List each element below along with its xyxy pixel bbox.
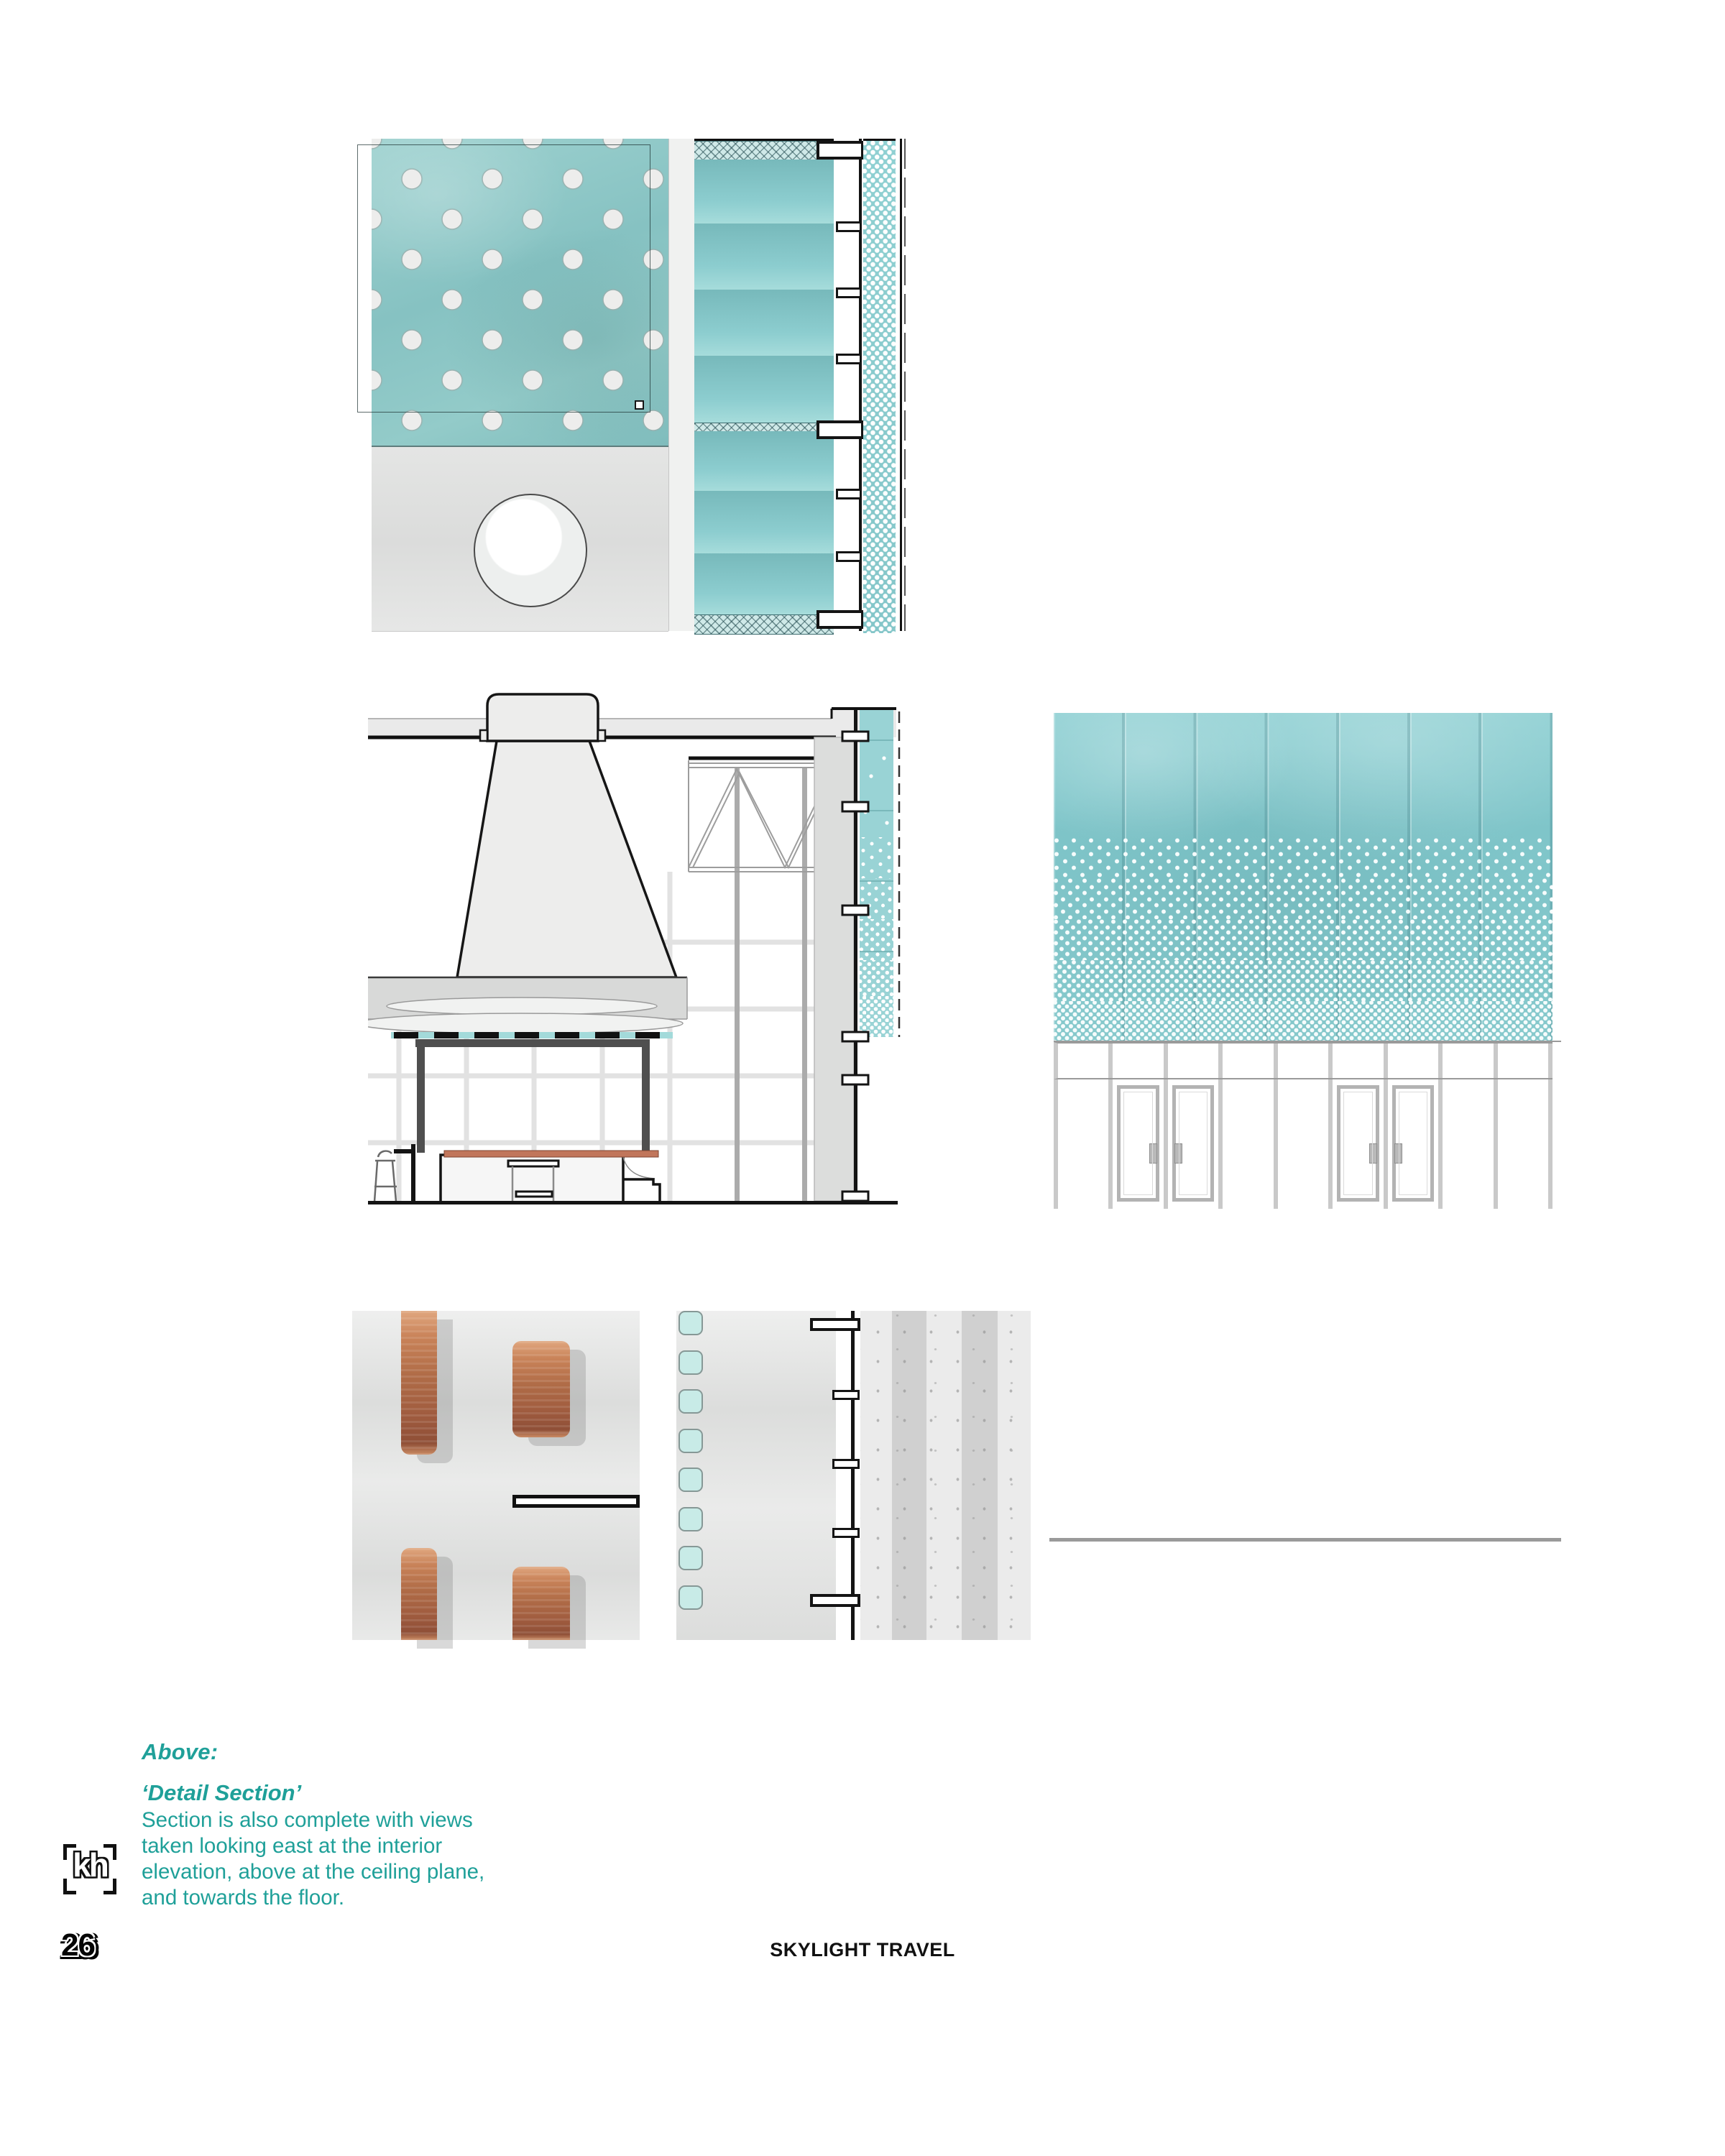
curtain-bay	[694, 431, 834, 492]
transom-cell	[1113, 1044, 1167, 1078]
curtain-stack-strip	[694, 139, 834, 633]
bar-stool	[374, 1151, 397, 1202]
section-cut-bar	[512, 1495, 640, 1508]
copper-bench	[512, 1341, 570, 1437]
curtain-bay	[694, 224, 834, 291]
curtain-dot-band	[1054, 960, 1552, 1001]
curtain-track-line	[854, 710, 857, 1202]
curtain-bay	[694, 160, 834, 225]
gradient-perforated-curtain	[1054, 713, 1552, 1042]
curtain-bay	[694, 356, 834, 424]
wall-clip-small	[832, 1528, 860, 1538]
door-bay	[1388, 1079, 1443, 1209]
door-bay	[1113, 1079, 1167, 1209]
skylight-collar	[487, 694, 598, 741]
glass-block	[678, 1507, 703, 1531]
glass-block	[678, 1389, 703, 1414]
detail-section-drawing	[368, 690, 920, 1207]
floor-line	[368, 1201, 898, 1204]
panel-fixing-marker	[635, 400, 644, 410]
glass-block	[678, 1429, 703, 1453]
glazing-bay	[1223, 1079, 1277, 1209]
facade-edge-line	[900, 139, 902, 631]
glass-block	[678, 1585, 703, 1610]
curtain-bay	[694, 491, 834, 555]
desk-stool-seat	[508, 1161, 558, 1166]
wall-clip-small	[832, 1459, 860, 1469]
wall-clip-small	[832, 1390, 860, 1400]
transom-cell	[1388, 1044, 1443, 1078]
copper-bench	[401, 1548, 437, 1640]
skylight-oculus	[474, 494, 587, 607]
sill-line	[1049, 1538, 1561, 1542]
curtain-bay	[694, 553, 834, 616]
section-curtain-strip	[860, 710, 899, 1037]
terrazzo-sidewalk	[860, 1311, 1031, 1640]
storefront-row	[1054, 1079, 1552, 1209]
glazing-bay	[1278, 1079, 1333, 1209]
glass-block	[678, 1546, 703, 1570]
wall-clip-large	[810, 1594, 860, 1607]
door-leaf	[1392, 1085, 1434, 1202]
door-handle	[1174, 1143, 1182, 1164]
transom-cell	[1278, 1044, 1333, 1078]
floor-plan-benches-drawing	[352, 1311, 640, 1640]
desk-stool-footrest	[516, 1192, 552, 1197]
ceiling-plan-detail-drawing	[372, 139, 903, 631]
storefront-glazing	[1054, 1042, 1552, 1213]
glass-block	[678, 1468, 703, 1492]
copper-bench	[401, 1311, 437, 1455]
bulkhead-band	[668, 139, 696, 631]
caption-line: elevation, above at the ceiling plane,	[142, 1859, 484, 1885]
bracket-clip-small	[836, 489, 862, 499]
bracket-clip-large	[816, 420, 864, 439]
curtain-bay	[694, 290, 834, 357]
perforated-screen-strip	[863, 139, 896, 633]
door-handle	[1149, 1143, 1157, 1164]
copper-bench	[512, 1567, 570, 1640]
curtain-dot-band	[1054, 919, 1552, 960]
roof-slab	[368, 709, 896, 737]
caption-line: and towards the floor.	[142, 1885, 484, 1911]
door-leaf	[1337, 1085, 1379, 1202]
wall-clip-large	[810, 1318, 860, 1331]
bracket-clip-small	[836, 287, 862, 298]
door-bay	[1168, 1079, 1223, 1209]
paving-band	[962, 1311, 998, 1640]
door-leaf	[1172, 1085, 1214, 1202]
door-bay	[1333, 1079, 1387, 1209]
interior-elevation-drawing	[1054, 713, 1552, 1213]
logo-letters: kh	[63, 1846, 116, 1884]
transom-row	[1054, 1042, 1552, 1079]
facade-dashed-line	[904, 139, 906, 631]
hood-canopy	[368, 977, 687, 1033]
insulation-hatch-band	[694, 141, 834, 161]
bracket-clip-large	[816, 610, 864, 629]
caption-line: Section is also complete with views	[142, 1807, 484, 1833]
transom-cell	[1058, 1044, 1113, 1078]
caption-body: Section is also complete with views take…	[142, 1807, 484, 1911]
reception-desk	[441, 1151, 660, 1202]
transom-cell	[1168, 1044, 1223, 1078]
caption-heading: Above:	[142, 1739, 218, 1765]
panel-trim-frame-line	[357, 144, 650, 413]
bracket-clip-small	[836, 551, 862, 562]
door-handle	[1394, 1143, 1402, 1164]
transom-cell	[1498, 1044, 1552, 1078]
window-post	[735, 768, 740, 1201]
caption-subheading: ‘Detail Section’	[142, 1780, 301, 1806]
door-handle	[1369, 1143, 1377, 1164]
kh-logo: kh	[63, 1840, 116, 1897]
curtain-dot-band	[1054, 878, 1552, 919]
paving-band	[892, 1311, 926, 1640]
bracket-clip-small	[836, 221, 862, 232]
transom-cell	[1333, 1044, 1387, 1078]
threshold-step	[623, 1179, 660, 1202]
glazing-bay	[1498, 1079, 1552, 1209]
glass-block	[678, 1350, 703, 1375]
glazing-bay	[1058, 1079, 1113, 1209]
caption-line: taken looking east at the interior	[142, 1833, 484, 1859]
glazing-bay	[1443, 1079, 1497, 1209]
curtain-dot-band	[1054, 1001, 1552, 1042]
curtain-dot-band	[1054, 837, 1552, 878]
glass-block	[678, 1311, 703, 1335]
door-swing-arc	[623, 1157, 655, 1179]
copper-countertop	[444, 1151, 658, 1157]
transom-cell	[1223, 1044, 1277, 1078]
portfolio-page: Above: ‘Detail Section’ Section is also …	[0, 0, 1725, 2156]
bracket-clip-small	[836, 354, 862, 364]
transom-cell	[1443, 1044, 1497, 1078]
footer-project-title: SKYLIGHT TRAVEL	[0, 1939, 1725, 1961]
door-leaf	[1117, 1085, 1159, 1202]
floor-plan-wall-strip-drawing	[676, 1311, 1031, 1640]
bracket-clip-large	[816, 141, 864, 160]
wall-line	[851, 1311, 855, 1640]
insulation-hatch-band	[694, 614, 834, 635]
